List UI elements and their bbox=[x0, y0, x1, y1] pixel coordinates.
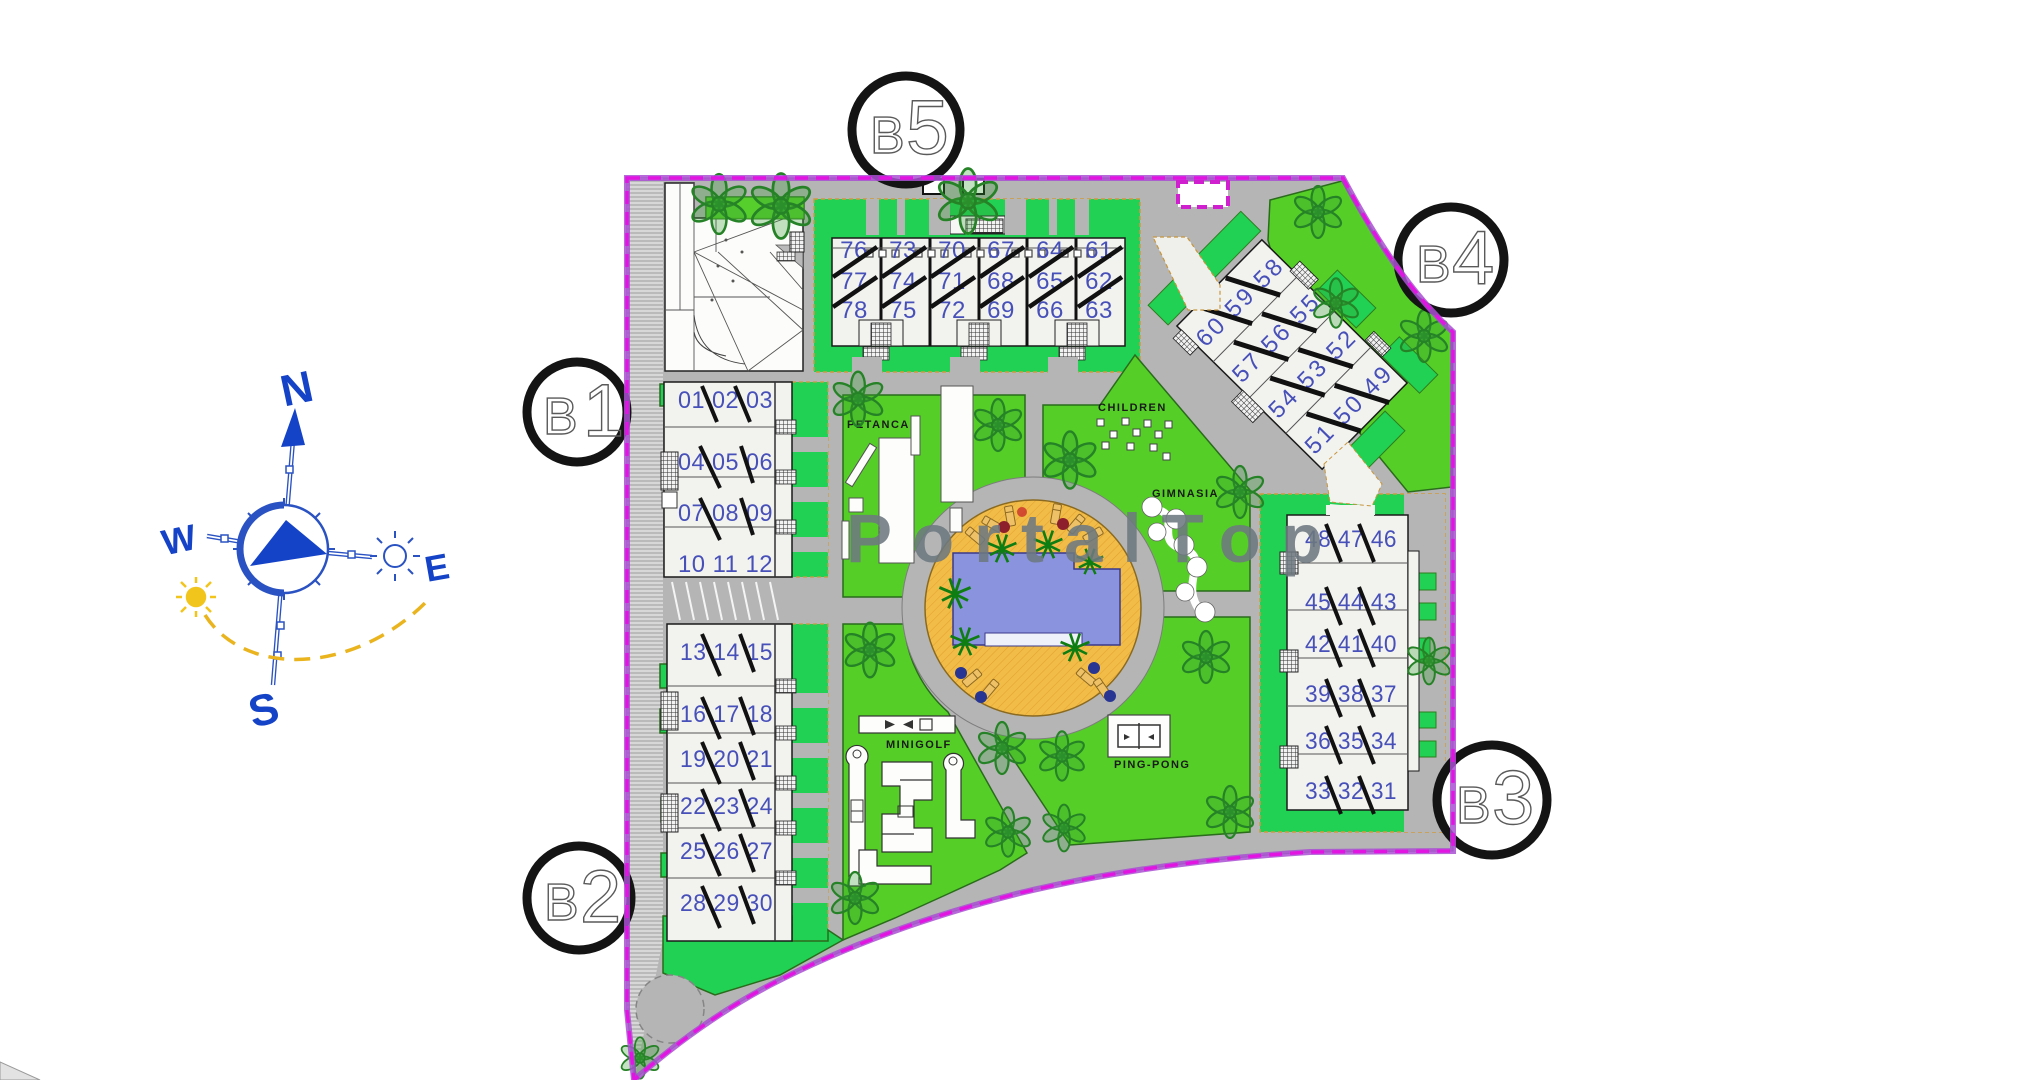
svg-text:76: 76 bbox=[840, 237, 868, 264]
svg-text:70: 70 bbox=[938, 237, 966, 264]
svg-text:2: 2 bbox=[580, 855, 621, 938]
svg-text:PortalTop: PortalTop bbox=[846, 500, 1343, 577]
svg-text:28 29 30: 28 29 30 bbox=[680, 890, 773, 917]
svg-text:45 44 43: 45 44 43 bbox=[1305, 589, 1397, 616]
svg-text:04 05 06: 04 05 06 bbox=[678, 449, 773, 476]
svg-text:3: 3 bbox=[1492, 756, 1534, 841]
svg-text:64: 64 bbox=[1036, 237, 1064, 264]
svg-text:B: B bbox=[544, 874, 579, 932]
svg-text:GIMNASIA: GIMNASIA bbox=[1152, 488, 1219, 500]
svg-text:42 41 40: 42 41 40 bbox=[1305, 631, 1397, 658]
svg-text:01 02 03: 01 02 03 bbox=[678, 387, 773, 414]
svg-text:25 26 27: 25 26 27 bbox=[680, 838, 773, 865]
svg-text:4: 4 bbox=[1452, 216, 1494, 301]
svg-text:PING-PONG: PING-PONG bbox=[1114, 759, 1190, 771]
svg-text:13 14 15: 13 14 15 bbox=[680, 639, 773, 666]
svg-text:33 32 31: 33 32 31 bbox=[1305, 778, 1397, 805]
svg-text:73: 73 bbox=[889, 237, 917, 264]
svg-text:B: B bbox=[543, 388, 578, 446]
svg-text:39 38 37: 39 38 37 bbox=[1305, 681, 1397, 708]
svg-text:67: 67 bbox=[987, 237, 1015, 264]
svg-text:MINIGOLF: MINIGOLF bbox=[886, 739, 952, 751]
svg-text:CHILDREN: CHILDREN bbox=[1098, 402, 1167, 414]
svg-text:61: 61 bbox=[1085, 237, 1113, 264]
svg-text:22 23 24: 22 23 24 bbox=[680, 793, 773, 820]
svg-text:10 11 12: 10 11 12 bbox=[678, 551, 773, 578]
svg-text:16 17 18: 16 17 18 bbox=[680, 701, 773, 728]
svg-text:1: 1 bbox=[583, 369, 624, 452]
svg-text:B: B bbox=[1456, 777, 1491, 835]
svg-text:36 35 34: 36 35 34 bbox=[1305, 728, 1397, 755]
svg-text:B: B bbox=[870, 107, 905, 165]
svg-text:07 08 09: 07 08 09 bbox=[678, 500, 773, 527]
svg-text:19 20 21: 19 20 21 bbox=[680, 746, 773, 773]
svg-text:B: B bbox=[1416, 236, 1451, 294]
svg-text:5: 5 bbox=[906, 85, 949, 171]
